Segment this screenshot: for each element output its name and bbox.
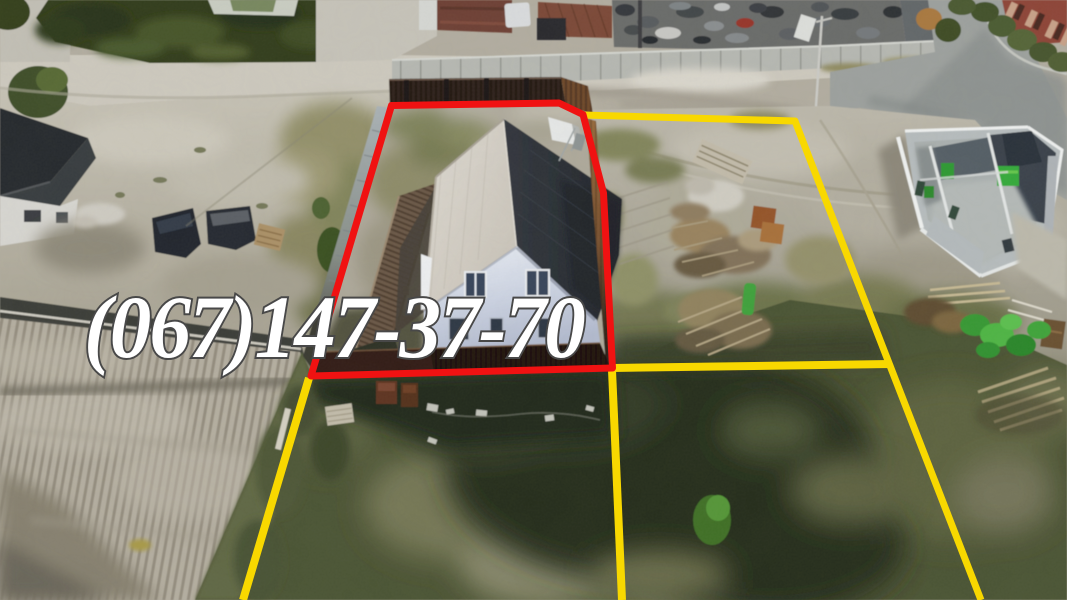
svg-text:(067)147-37-70: (067)147-37-70: [84, 279, 584, 377]
